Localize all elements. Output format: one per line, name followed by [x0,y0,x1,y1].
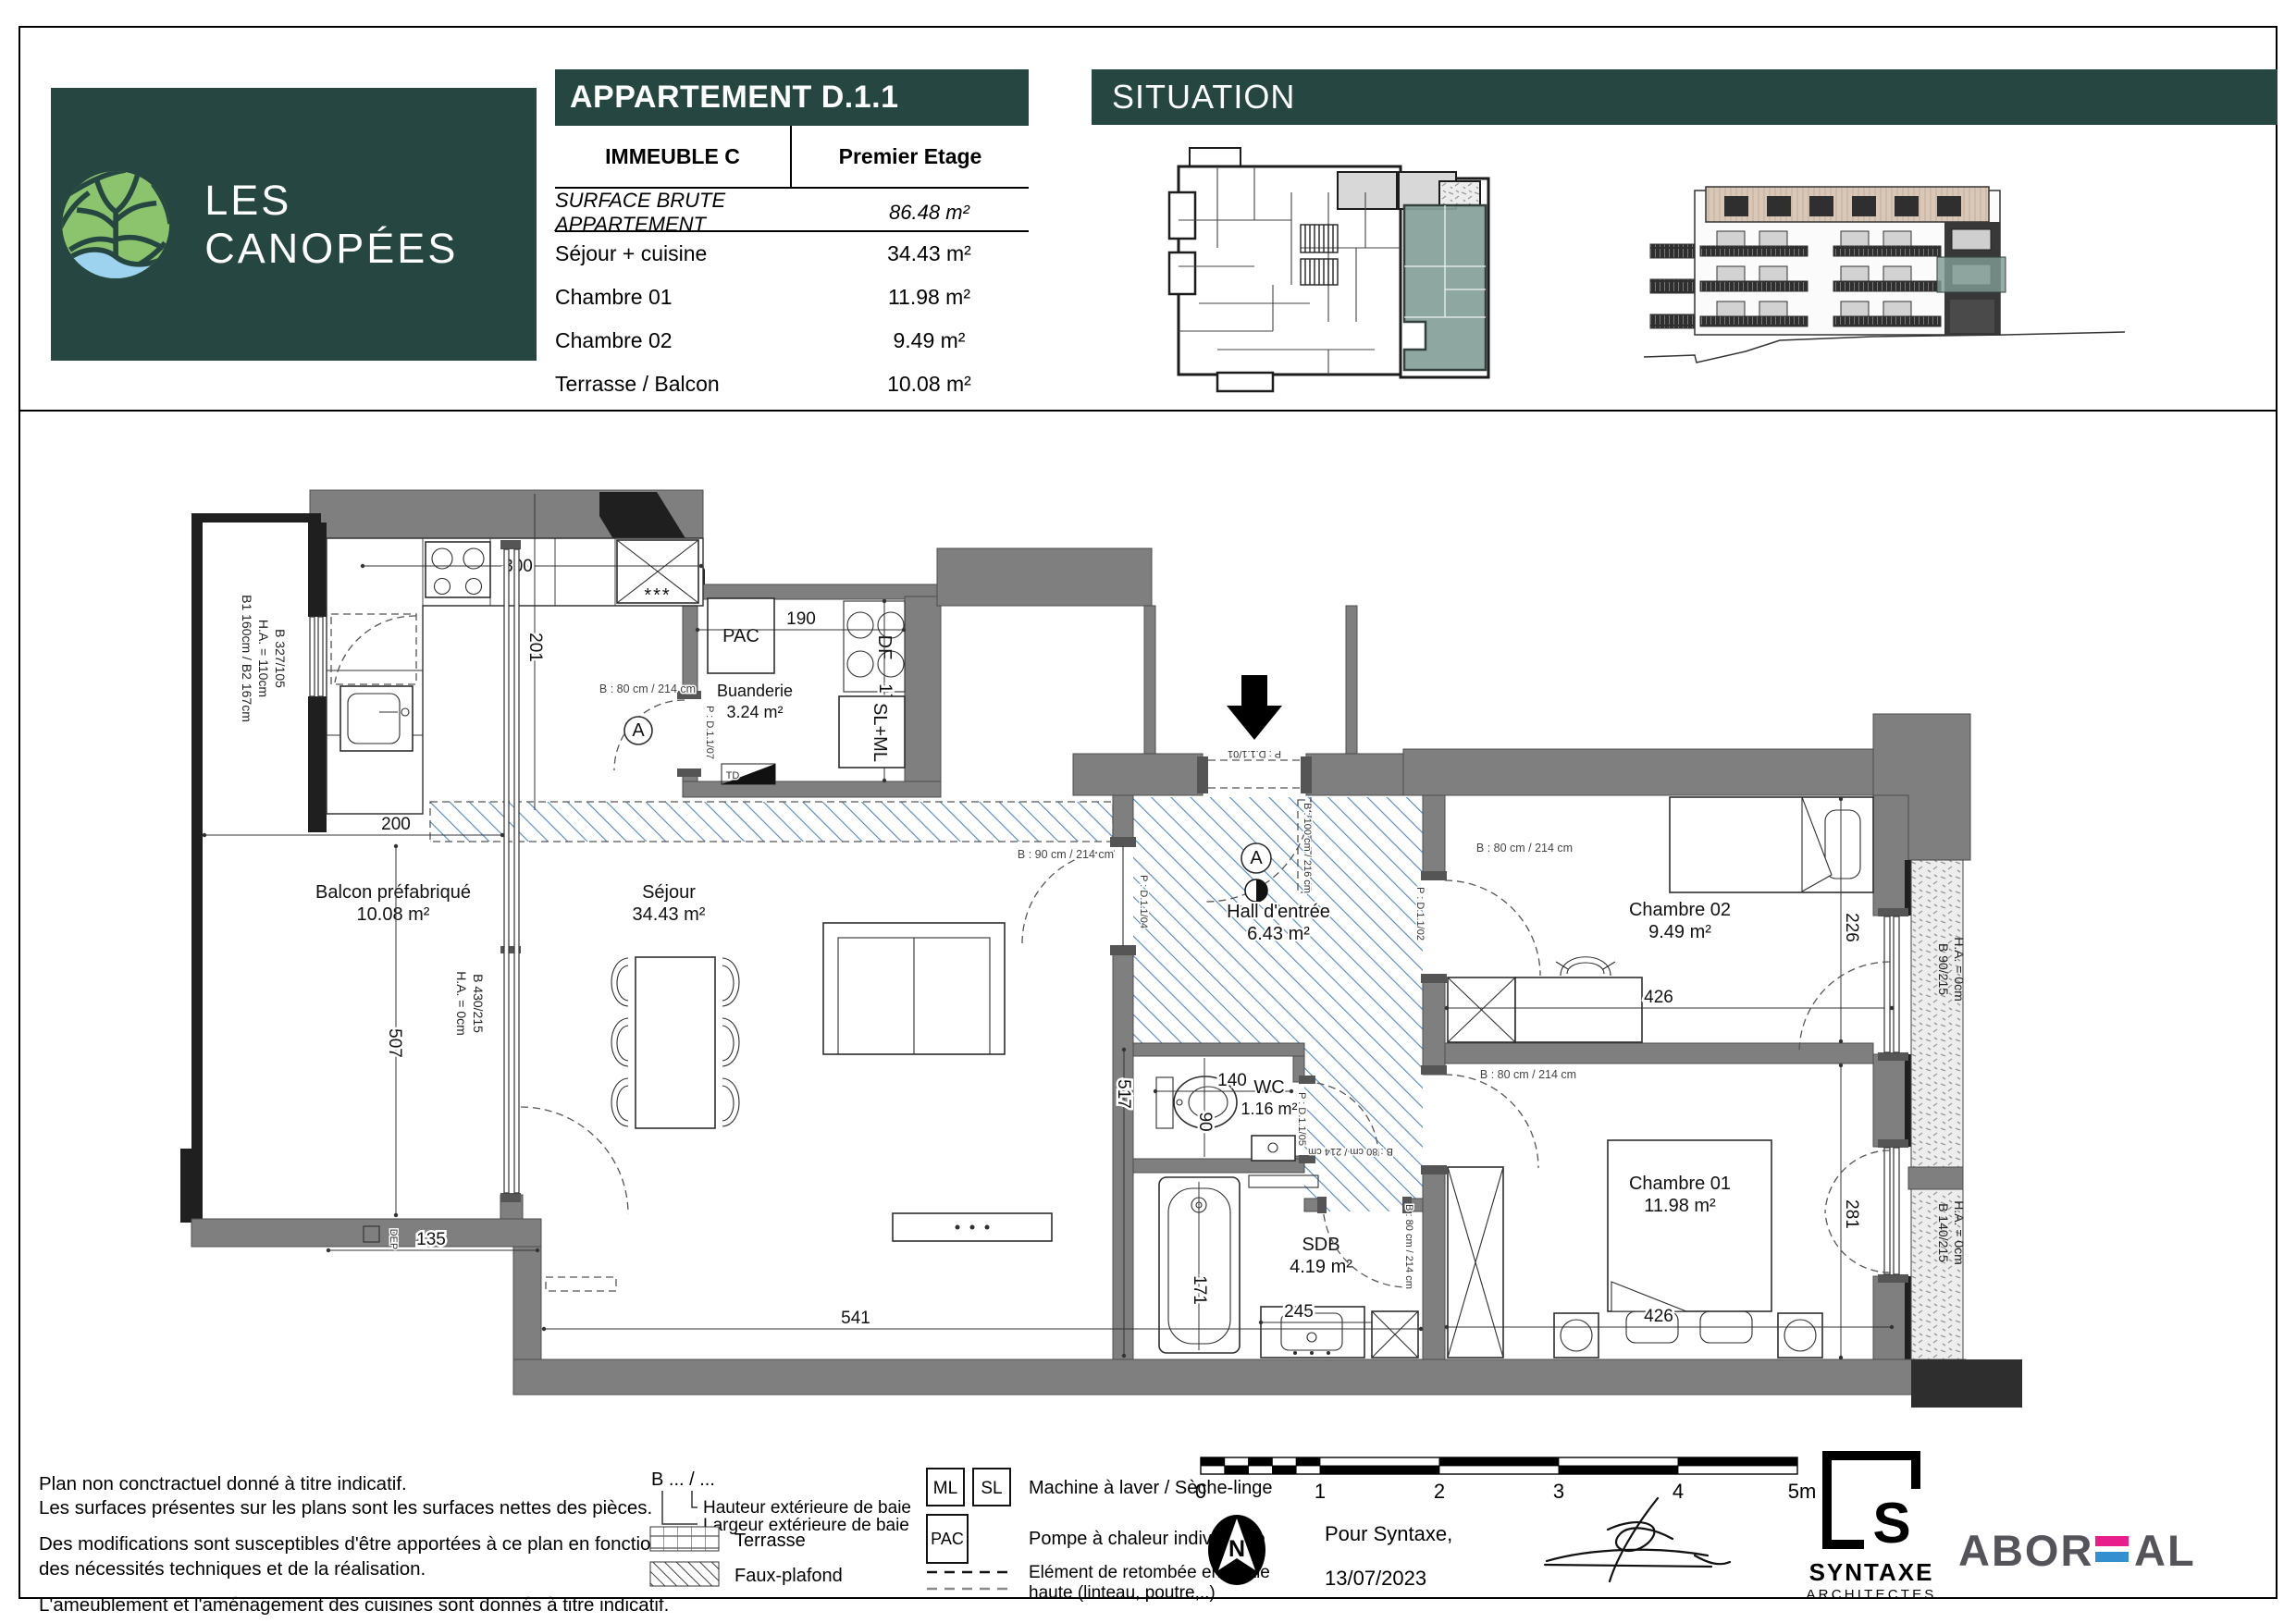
svg-text:B : 80 cm / 214 cm: B : 80 cm / 214 cm [1308,1146,1393,1157]
svg-text:Hauteur extérieure de baie: Hauteur extérieure de baie [703,1498,911,1518]
svg-text:WC: WC [1253,1077,1284,1098]
svg-text:AL: AL [2134,1526,2196,1575]
floor-plan: *** 300 201 B 327/105 H.A. = 110cm B1 16… [19,412,2277,1466]
syntaxe-logo-icon: S [1820,1448,1923,1552]
svg-text:135: 135 [416,1230,446,1249]
kitchen-sink [340,686,413,751]
table-row: Chambre 02 9.49 m² [555,319,1029,363]
svg-text:B 90/215: B 90/215 [1936,943,1951,995]
svg-text:2: 2 [1434,1480,1445,1503]
svg-text:B : 100 cm / 216 cm: B : 100 cm / 216 cm [1302,803,1313,893]
svg-text:B : 80 cm / 214 cm: B : 80 cm / 214 cm [1476,842,1573,855]
elevation-apartment-highlight [1937,257,2006,292]
situation-title: SITUATION [1112,78,1295,117]
svg-text:B1 160cm / B2 167cm: B1 160cm / B2 167cm [240,595,254,722]
svg-text:B 430/215: B 430/215 [471,974,486,1033]
note-line: Des modifications sont susceptibles d'êt… [39,1532,677,1580]
situation-site-plan [1162,137,1550,410]
situation-header: SITUATION [1092,69,2277,125]
room-value: 9.49 m² [830,328,1029,353]
svg-text:N: N [1228,1536,1245,1562]
df-unit: DF [844,601,905,692]
svg-text:281: 281 [1842,1199,1861,1229]
legend-faux-plafond: Faux-plafond [649,1559,890,1589]
svg-text:PAC: PAC [931,1530,964,1548]
surface-value: 86.48 m² [830,201,1029,225]
tall-wardrobe [1448,1167,1503,1358]
svg-text:190: 190 [786,609,816,629]
apartment-title: APPARTEMENT D.1.1 [555,69,1029,126]
room-label: Chambre 01 [555,285,830,310]
svg-text:H.A. = 0cm: H.A. = 0cm [1952,937,1967,1002]
svg-text:10.08 m²: 10.08 m² [357,904,430,925]
north-arrow-icon: N [1203,1511,1271,1589]
svg-text:0: 0 [1195,1480,1206,1503]
building-name: IMMEUBLE C [555,126,792,187]
washer-dryer: SL+ML [839,696,905,768]
svg-text:201: 201 [525,633,545,662]
svg-text:SL+ML: SL+ML [870,703,890,762]
aboreal-logo: ABOR AL [1957,1524,2234,1578]
svg-text:226: 226 [1842,913,1861,942]
svg-text:Faux-plafond: Faux-plafond [734,1566,843,1586]
svg-text:11.98 m²: 11.98 m² [1644,1196,1716,1216]
single-bed [1670,797,1873,892]
svg-text:200: 200 [381,815,411,834]
buanderie-door: A B : 80 cm / 214 cm P : D.1.1/07 [599,682,715,777]
svg-text:H.A. = 110cm: H.A. = 110cm [256,620,271,697]
stove [426,542,490,597]
wc-sink [1252,1136,1295,1161]
svg-text:P : D.1.1/07: P : D.1.1/07 [704,706,715,759]
buanderie: PAC DF 190 170 SL+ML TD Buanderie 3.24 m… [599,598,905,784]
nightstand [1778,1313,1822,1358]
svg-text:ML: ML [933,1479,957,1498]
svg-text:P : D.1.1/01: P : D.1.1/01 [1228,748,1281,759]
table-row: Séjour + cuisine 34.43 m² [555,232,1029,276]
svg-text:P : D.1.1/04: P : D.1.1/04 [1138,875,1149,928]
svg-text:507: 507 [385,1028,404,1058]
svg-text:Hall d'entrée: Hall d'entrée [1227,902,1330,922]
brand-card: LES CANOPÉES [51,88,537,361]
legend-pac: PAC Pompe à chaleur individuelle [925,1513,1360,1567]
svg-text:Terrasse: Terrasse [734,1531,806,1551]
syntaxe-logo-name: SYNTAXE [1802,1558,1941,1587]
building-floor-row: IMMEUBLE C Premier Etage [555,126,1029,189]
svg-text:SL: SL [981,1479,1002,1498]
aboreal-e-top-bar [2095,1536,2129,1546]
canopees-tree-icon [51,155,180,294]
svg-text:P : D.1.1/05: P : D.1.1/05 [1296,1092,1307,1146]
svg-text:4.19 m²: 4.19 m² [1290,1257,1352,1277]
apartment-summary-table: APPARTEMENT D.1.1 IMMEUBLE C Premier Eta… [555,69,1029,406]
sejour-hall-door: B : 90 cm / 214 cm P : D.1.1/04 [1018,837,1149,955]
situation-elevation [1639,159,2129,381]
svg-text:TD: TD [726,770,740,781]
table-row: Chambre 01 11.98 m² [555,276,1029,319]
svg-text:6.43 m²: 6.43 m² [1247,924,1310,944]
surface-label: SURFACE BRUTE APPARTEMENT [555,189,830,237]
ch1-door: B : 80 cm / 214 cm [1421,1065,1576,1174]
svg-text:B ... / ...: B ... / ... [651,1469,715,1490]
room-label: Chambre 02 [555,328,830,353]
brand-name: LES CANOPÉES [204,177,537,273]
attribution-date: 13/07/2023 [1325,1567,1426,1591]
table-row: Terrasse / Balcon 10.08 m² [555,363,1029,406]
svg-text:SDB: SDB [1302,1235,1339,1255]
plan-notes: Plan non conctractuel donné à titre indi… [39,1472,677,1623]
svg-text:541: 541 [841,1309,870,1328]
svg-text:H.A. = 0cm: H.A. = 0cm [454,971,469,1036]
fridge: *** [617,540,698,606]
room-value: 11.98 m² [830,285,1029,310]
kitchen-window [310,617,323,696]
svg-text:Chambre 02: Chambre 02 [1629,900,1731,920]
faux-plafond-hatch-sejour [430,802,1113,842]
svg-text:B 327/105: B 327/105 [273,629,288,688]
svg-text:S: S [1872,1492,1910,1552]
legend-retombee: Elément de retombée en partie haute (lin… [925,1565,1360,1607]
tv-bench [893,1213,1052,1241]
room-label: Terrasse / Balcon [555,372,830,397]
td-panel: TD [722,764,775,784]
double-bed [1608,1140,1771,1343]
desk [1515,977,1642,1042]
svg-text:H.A. = 0cm: H.A. = 0cm [1952,1200,1967,1265]
note-line: Les surfaces présentes sur les plans son… [39,1496,677,1520]
svg-text:1.16 m²: 1.16 m² [1241,1100,1297,1118]
svg-text:P : D.1.1/02: P : D.1.1/02 [1414,887,1426,941]
terrace-hatch [1911,860,1963,1359]
svg-text:DEP: DEP [388,1229,399,1250]
svg-text:3.24 m²: 3.24 m² [726,703,783,721]
svg-text:90: 90 [1195,1112,1215,1131]
svg-text:haute (linteau, poutre,..): haute (linteau, poutre,..) [1029,1583,1216,1603]
svg-text:PAC: PAC [722,626,759,646]
svg-text:Chambre 01: Chambre 01 [1629,1174,1731,1194]
svg-text:Séjour: Séjour [642,882,696,903]
signature [1517,1491,1776,1592]
svg-text:B : 80 cm / 214 cm: B : 80 cm / 214 cm [599,682,696,695]
sofa [823,923,1005,1054]
svg-text:***: *** [644,585,671,606]
svg-text:B : 80 cm / 214 cm: B : 80 cm / 214 cm [1480,1068,1576,1081]
svg-text:140: 140 [1217,1071,1247,1090]
svg-text:A: A [1250,848,1263,868]
syntaxe-logo: S SYNTAXE ARCHITECTES [1802,1448,1941,1603]
svg-text:517: 517 [1114,1079,1133,1109]
svg-text:B : 80 cm / 214 cm: B : 80 cm / 214 cm [1403,1204,1414,1289]
bay-window [500,540,628,1214]
ch1-terrace-window [1825,1139,1908,1283]
svg-text:426: 426 [1644,988,1673,1007]
plan-sheet: LES CANOPÉES APPARTEMENT D.1.1 IMMEUBLE … [0,0,2296,1623]
svg-text:426: 426 [1644,1307,1673,1326]
svg-text:245: 245 [1284,1302,1314,1322]
svg-text:ABOR: ABOR [1958,1526,2093,1575]
desk-chair [1556,957,1615,976]
nightstand [1554,1313,1599,1358]
note-line: Plan non conctractuel donné à titre indi… [39,1472,677,1496]
surface-row: SURFACE BRUTE APPARTEMENT 86.48 m² [555,189,1029,232]
attribution-for: Pour Syntaxe, [1325,1522,1452,1546]
svg-text:171: 171 [1190,1275,1209,1305]
room-label: Séjour + cuisine [555,241,830,266]
bathroom-column [1372,1311,1418,1358]
syntaxe-logo-sub: ARCHITECTES [1802,1587,1941,1603]
aboreal-e-bottom-bar [2095,1552,2129,1562]
room-value: 34.43 m² [830,241,1029,266]
svg-text:A: A [632,720,645,741]
floor-name: Premier Etage [792,126,1029,187]
legend-terrasse: Terrasse [649,1524,890,1554]
entry-arrow-icon [1227,675,1282,740]
room-value: 10.08 m² [830,372,1029,397]
note-line: L'ameublement et l'aménagement des cuisi… [39,1593,677,1617]
svg-text:Balcon préfabriqué: Balcon préfabriqué [315,882,471,903]
wardrobe [1448,977,1515,1042]
svg-text:B 140/215: B 140/215 [1936,1203,1951,1262]
svg-text:B : 90 cm / 214 cm: B : 90 cm / 214 cm [1018,848,1114,861]
svg-text:1: 1 [1315,1480,1326,1503]
svg-text:9.49 m²: 9.49 m² [1648,922,1711,942]
dining-table [611,957,739,1128]
svg-text:Buanderie: Buanderie [717,682,793,700]
svg-text:34.43 m²: 34.43 m² [633,904,706,925]
